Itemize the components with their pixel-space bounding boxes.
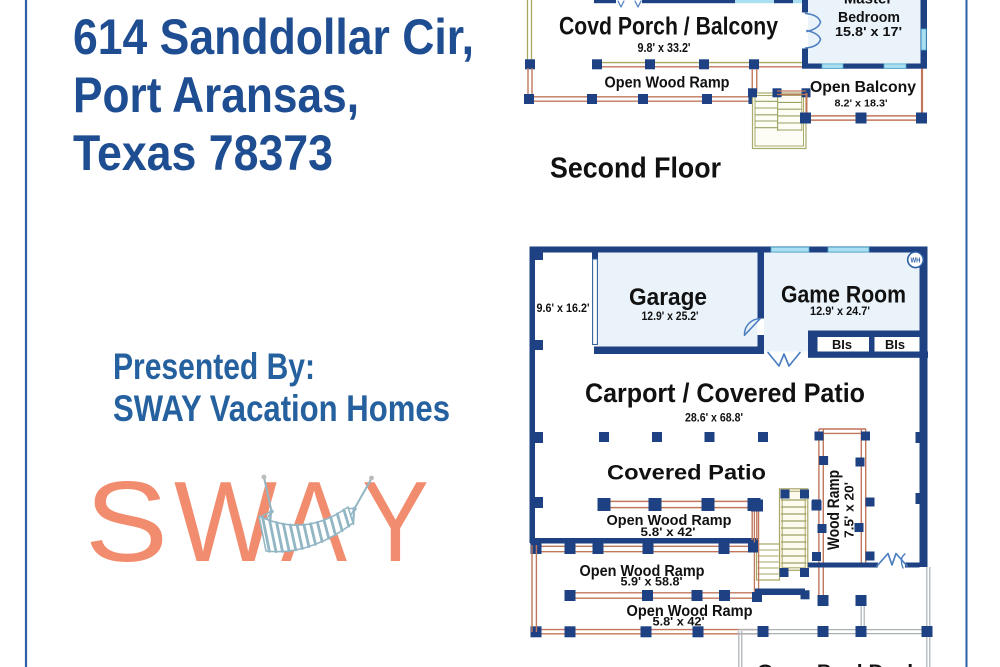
svg-text:28.6' x 68.8': 28.6' x 68.8' (685, 411, 743, 425)
svg-text:Second Floor: Second Floor (550, 153, 721, 185)
svg-text:Carport / Covered Patio: Carport / Covered Patio (585, 378, 865, 408)
svg-text:WH: WH (911, 256, 921, 265)
svg-text:9.8' x 33.2': 9.8' x 33.2' (638, 41, 691, 55)
svg-text:Open Wood Ramp: Open Wood Ramp (605, 75, 730, 92)
svg-text:Port Aransas,: Port Aransas, (73, 67, 359, 123)
svg-text:7.5' x 20': 7.5' x 20' (842, 482, 857, 538)
svg-text:5.8' x 42': 5.8' x 42' (641, 525, 696, 539)
svg-text:Bedroom: Bedroom (838, 9, 900, 26)
svg-text:15.8' x 17': 15.8' x 17' (835, 25, 902, 39)
svg-text:8.2' x 18.3': 8.2' x 18.3' (835, 98, 888, 110)
svg-text:9.6' x 16.2': 9.6' x 16.2' (537, 303, 590, 315)
svg-text:12.9' x 24.7': 12.9' x 24.7' (810, 304, 870, 318)
svg-text:BIs: BIs (885, 337, 905, 352)
svg-text:Garage: Garage (629, 284, 707, 311)
svg-text:614 Sanddollar Cir,: 614 Sanddollar Cir, (73, 9, 474, 65)
svg-text:Covd Porch / Balcony: Covd Porch / Balcony (559, 13, 778, 41)
svg-text:S: S (85, 459, 168, 586)
svg-text:5.9' x 58.8': 5.9' x 58.8' (621, 575, 683, 589)
svg-text:Open Balcony: Open Balcony (810, 79, 916, 96)
svg-text:Open Pool Deck: Open Pool Deck (757, 661, 919, 667)
svg-text:12.9' x 25.2': 12.9' x 25.2' (642, 309, 699, 323)
svg-text:SWAY Vacation Homes: SWAY Vacation Homes (113, 388, 450, 429)
svg-text:BIs: BIs (832, 337, 852, 352)
svg-text:Covered Patio: Covered Patio (607, 462, 766, 485)
svg-text:Wood Ramp: Wood Ramp (825, 470, 843, 550)
svg-text:Presented By:: Presented By: (113, 346, 315, 387)
svg-text:Texas 78373: Texas 78373 (73, 125, 333, 181)
svg-text:Master: Master (844, 0, 893, 8)
